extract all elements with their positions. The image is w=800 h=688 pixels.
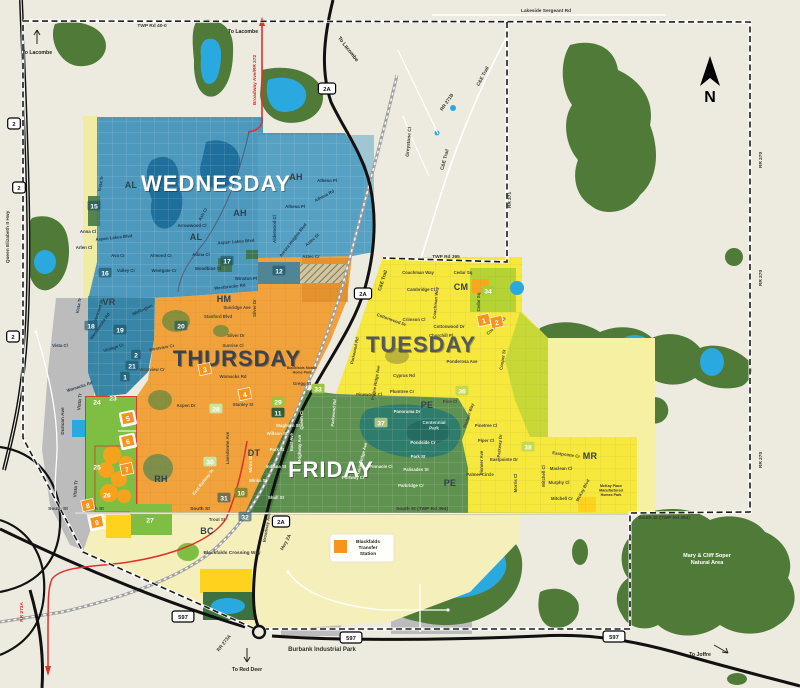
street-label: Westview Cr: [139, 367, 165, 372]
street-label: Arrowwood Cl: [177, 223, 206, 228]
street-label: Stanley St: [233, 402, 254, 407]
street-label: Westgate Cr: [152, 268, 177, 273]
zone-badge-38: 38: [522, 442, 535, 452]
street-label: Alderwood Cl: [272, 215, 277, 243]
street-label: Anna Cl: [80, 229, 96, 234]
day-label: TUESDAY: [366, 332, 476, 357]
svg-text:38: 38: [524, 444, 532, 451]
area-code-label: AH: [233, 208, 247, 218]
street-label: Minto St: [248, 455, 253, 473]
road-label: Lakeside Sergeant Rd: [521, 8, 571, 14]
road-label: Duncan Ave: [60, 407, 66, 435]
street-label: Waghorn St: [276, 423, 301, 428]
area-code-label: VR: [102, 297, 115, 307]
map-canvas: N WEDNESDAYWEDNESDAYTHURSDAYTHURSDAYTUES…: [0, 0, 800, 688]
street-label: Ava Cr: [111, 253, 125, 258]
street-label: Palisades St: [403, 467, 429, 472]
area-code-label: AL: [125, 180, 138, 190]
street-label: Woodbine Cl: [195, 266, 221, 271]
road-label: RR 270: [758, 452, 764, 469]
place-label: McKay PlaceManufacturedHomes Park: [599, 484, 623, 497]
svg-text:2A: 2A: [323, 87, 331, 93]
area-code-label: HM: [217, 294, 232, 304]
street-label: Palmer Circle: [466, 472, 494, 477]
zone-badge-21: 21: [126, 361, 139, 371]
area-code-label: PE: [421, 400, 434, 410]
svg-text:21: 21: [128, 363, 136, 370]
street-label: Indiana St: [266, 464, 287, 469]
street-label: Ponderosa Ave: [447, 359, 479, 364]
orange-tag-3: 3: [198, 362, 212, 375]
zone-badge-24: 24: [93, 399, 101, 406]
svg-text:10: 10: [237, 490, 245, 497]
zone-badge-11: 11: [272, 408, 285, 418]
zone-badge-29: 29: [272, 397, 285, 407]
svg-text:11: 11: [274, 410, 281, 417]
road-label: South St: [190, 506, 210, 512]
street-label: Shull St: [268, 495, 285, 500]
area-code-label: RH: [154, 474, 168, 484]
highway-shield-597: 597: [172, 611, 194, 622]
street-label: Cedar Sq: [476, 292, 481, 311]
direction-label: To Lacombe: [22, 50, 52, 56]
street-label: Pine Cl: [443, 399, 458, 404]
orange-tag-2: 2: [490, 315, 504, 328]
street-label: Panorama Dr: [394, 409, 421, 414]
street-label: Eastpointe Dr: [490, 457, 518, 462]
svg-text:2: 2: [17, 186, 20, 192]
svg-text:27: 27: [146, 517, 154, 524]
zone-badge-2: 2: [131, 350, 141, 360]
zone-badge-34: 34: [482, 286, 495, 296]
street-label: Morris Cl: [513, 474, 518, 493]
zone-badge-37: 37: [375, 418, 388, 428]
svg-text:597: 597: [178, 615, 188, 621]
road-label: Queen Elizabeth II Hwy: [5, 210, 11, 263]
zone-badge-20: 20: [175, 321, 188, 331]
street-label: Coachman Way: [402, 270, 434, 275]
highway-shield-2: 2: [13, 182, 26, 193]
zone-badge-10: 10: [235, 488, 248, 498]
street-label: Cottonwood Dr: [433, 324, 464, 329]
street-label: Winks St: [249, 478, 268, 483]
street-label: Cambridge Cl: [407, 287, 435, 292]
street-label: Murphy Cl: [548, 480, 569, 485]
street-label: Mitchell Cl: [541, 465, 546, 487]
area-code-label: AL: [190, 232, 203, 242]
street-label: Willson St: [267, 431, 288, 436]
svg-text:37: 37: [377, 420, 385, 427]
street-label: Churchill Pl: [429, 333, 453, 338]
street-label: Winston Pl: [235, 276, 257, 281]
svg-text:26: 26: [103, 492, 111, 499]
svg-text:2A: 2A: [359, 292, 367, 298]
street-label: Pondside Cr: [410, 440, 436, 445]
svg-text:2: 2: [11, 335, 14, 341]
gold-block-2: [200, 569, 252, 593]
blackfalds-collection-zone-map: N WEDNESDAYWEDNESDAYTHURSDAYTHURSDAYTUES…: [0, 0, 800, 688]
zone-badge-1: 1: [120, 372, 130, 382]
road-label: TWP Rd 40-0: [137, 23, 167, 29]
area-code-label: AH: [289, 172, 303, 182]
orange-tag-1: 1: [477, 313, 491, 326]
road-label: South St: [48, 506, 68, 512]
street-label: Piper Cl: [478, 438, 494, 443]
road-label: TWP Rd 395: [432, 254, 460, 260]
svg-text:25: 25: [93, 464, 101, 471]
svg-text:17: 17: [223, 258, 231, 265]
svg-text:2: 2: [12, 122, 15, 128]
zone-badge-26: 26: [103, 492, 111, 499]
road-label: RR 271: [507, 192, 513, 209]
street-label: Adina Cl: [192, 252, 209, 257]
street-label: Cedar Sq: [454, 270, 473, 275]
svg-text:2A: 2A: [277, 520, 285, 526]
zone-badge-36: 36: [456, 386, 469, 396]
svg-text:28: 28: [212, 406, 220, 413]
area-code-label: BC: [200, 526, 214, 536]
area-code-label: PE: [444, 478, 457, 488]
compass-n-label: N: [704, 89, 716, 106]
street-label: Maclean Cl: [550, 466, 572, 471]
highway-shield-2A: 2A: [318, 83, 335, 94]
direction-label: To Red Deer: [232, 667, 262, 673]
svg-text:2: 2: [134, 352, 138, 359]
street-label: Parkridge Cr: [398, 483, 424, 488]
day-label: WEDNESDAY: [141, 171, 291, 196]
zone-badge-18: 18: [85, 321, 98, 331]
highway-shield-597: 597: [603, 631, 625, 642]
zone-badge-30: 30: [204, 457, 217, 467]
street-label: Park St: [411, 454, 426, 459]
svg-text:29: 29: [274, 399, 282, 406]
zone-badge-25: 25: [93, 464, 101, 471]
svg-text:24: 24: [93, 399, 101, 406]
zone-badge-32: 32: [239, 512, 252, 522]
street-label: Park St: [270, 447, 285, 452]
street-label: Portway Cl: [342, 475, 364, 480]
day-label: THURSDAY: [173, 346, 301, 371]
svg-text:30: 30: [206, 459, 214, 466]
orange-tag-7: 7: [120, 462, 134, 475]
street-label: East Ave: [289, 432, 294, 450]
street-label: Silver Dr: [252, 299, 257, 317]
svg-text:19: 19: [116, 327, 124, 334]
street-label: Trout St: [209, 517, 226, 522]
street-label: Valley Cr: [117, 268, 135, 273]
street-label: Sunrise Cl: [222, 343, 243, 348]
street-label: Lansdowne Ave: [225, 431, 230, 464]
street-label: Pinetree Cl: [475, 423, 497, 428]
svg-text:597: 597: [346, 636, 356, 642]
street-label: Plumtree Cr: [390, 389, 415, 394]
road-label: Broadway Ave/RR 272: [252, 55, 258, 106]
street-label: Womacks Rd: [220, 374, 247, 379]
street-label: Silver Dr: [227, 333, 245, 338]
zone-badge-27: 27: [146, 517, 154, 524]
road-label: RR 273A: [19, 602, 25, 622]
svg-text:12: 12: [275, 268, 283, 275]
highway-shield-2: 2: [7, 331, 20, 342]
svg-text:33: 33: [314, 386, 322, 393]
zone-badge-15: 15: [88, 201, 101, 211]
gold-block-1: [106, 515, 131, 538]
svg-text:16: 16: [101, 270, 109, 277]
zone-badge-19: 19: [114, 325, 127, 335]
street-label: Arlen Cl: [76, 245, 92, 250]
street-label: Sunridge Ave: [223, 305, 251, 310]
svg-text:23: 23: [109, 395, 117, 402]
highway-shield-2A: 2A: [272, 516, 289, 527]
street-label: Vista Cl: [52, 343, 68, 348]
svg-text:1: 1: [123, 374, 127, 381]
zone-badge-16: 16: [99, 268, 112, 278]
road-label: Blackfalds Crossing Way: [203, 550, 260, 556]
zone-badge-28: 28: [210, 404, 223, 414]
street-label: Pinnacle Cl: [369, 464, 392, 469]
street-label: Mitchell Cr: [551, 496, 573, 501]
zone-badge-12: 12: [273, 266, 286, 276]
street-label: Aztec Cr: [302, 254, 320, 259]
street-label: Athena Pl: [317, 178, 337, 183]
road-label: RR 270: [758, 270, 764, 287]
street-label: Stanford Blvd: [204, 314, 233, 319]
orange-tag-8: 8: [81, 498, 95, 511]
highway-shield-2: 2: [8, 118, 21, 129]
zone-badge-23: 23: [109, 395, 117, 402]
road-label: RR 270: [758, 152, 764, 169]
area-code-label: CM: [454, 282, 469, 292]
svg-text:18: 18: [87, 323, 95, 330]
zone-badge-33: 33: [312, 384, 325, 394]
street-label: Gregg St: [293, 381, 312, 386]
svg-text:34: 34: [484, 288, 492, 295]
svg-text:36: 36: [458, 388, 466, 395]
svg-text:15: 15: [90, 203, 98, 210]
street-label: Almond Cr: [150, 253, 172, 258]
direction-label: To Lacombe: [228, 29, 258, 35]
svg-text:32: 32: [241, 514, 249, 521]
road-label: South St (TWP Rd 394): [638, 515, 690, 521]
orange-tag-4: 4: [238, 387, 252, 400]
highway-shield-597: 597: [340, 632, 362, 643]
zone-badge-31: 31: [218, 493, 231, 503]
direction-label: To Joffre: [689, 652, 711, 658]
road-label: South St (TWP Rd 394): [396, 506, 448, 512]
highway-shield-2A: 2A: [354, 288, 371, 299]
street-label: Cyprus Rd: [393, 373, 415, 378]
street-label: Highway Ave: [297, 434, 302, 461]
svg-text:31: 31: [220, 495, 228, 502]
svg-text:20: 20: [177, 323, 185, 330]
street-label: Aspen Dr: [176, 403, 195, 408]
street-label: Athena Pl: [285, 204, 305, 209]
hatched-block: [300, 264, 346, 283]
street-label: Pinewood Cl: [356, 392, 382, 397]
area-code-label: MR: [583, 451, 598, 461]
place-label: Burbank Industrial Park: [288, 647, 356, 653]
zone-badge-17: 17: [221, 256, 234, 266]
svg-text:597: 597: [609, 635, 619, 641]
